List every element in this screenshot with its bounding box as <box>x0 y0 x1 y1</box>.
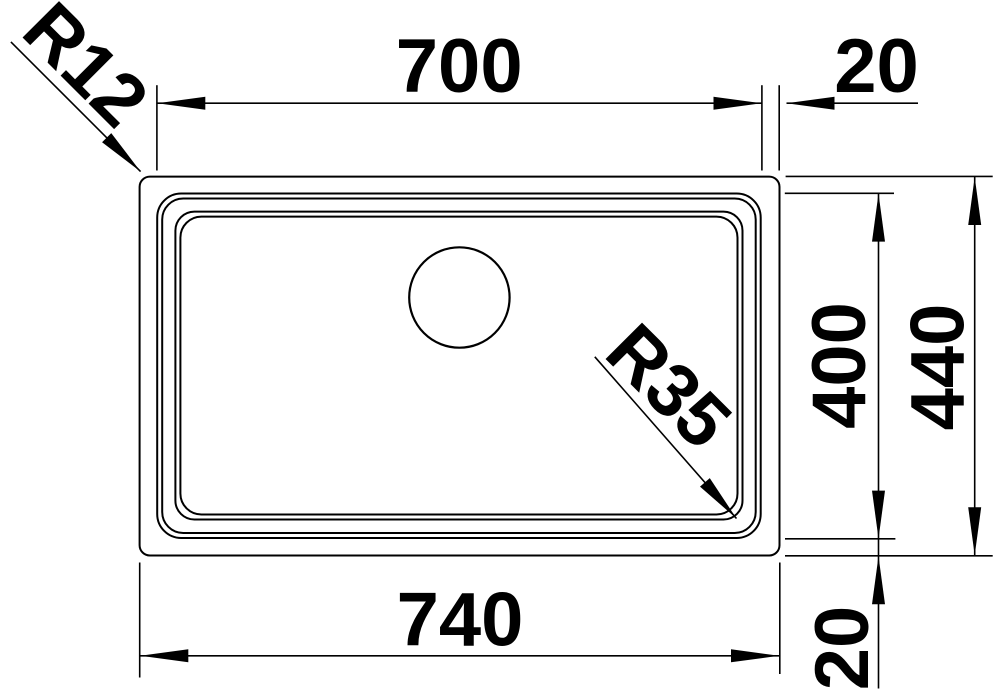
svg-text:740: 740 <box>397 578 524 663</box>
svg-text:20: 20 <box>800 606 885 691</box>
svg-text:700: 700 <box>396 24 523 109</box>
svg-text:20: 20 <box>834 24 919 109</box>
svg-text:440: 440 <box>896 304 981 431</box>
svg-text:400: 400 <box>797 302 882 429</box>
